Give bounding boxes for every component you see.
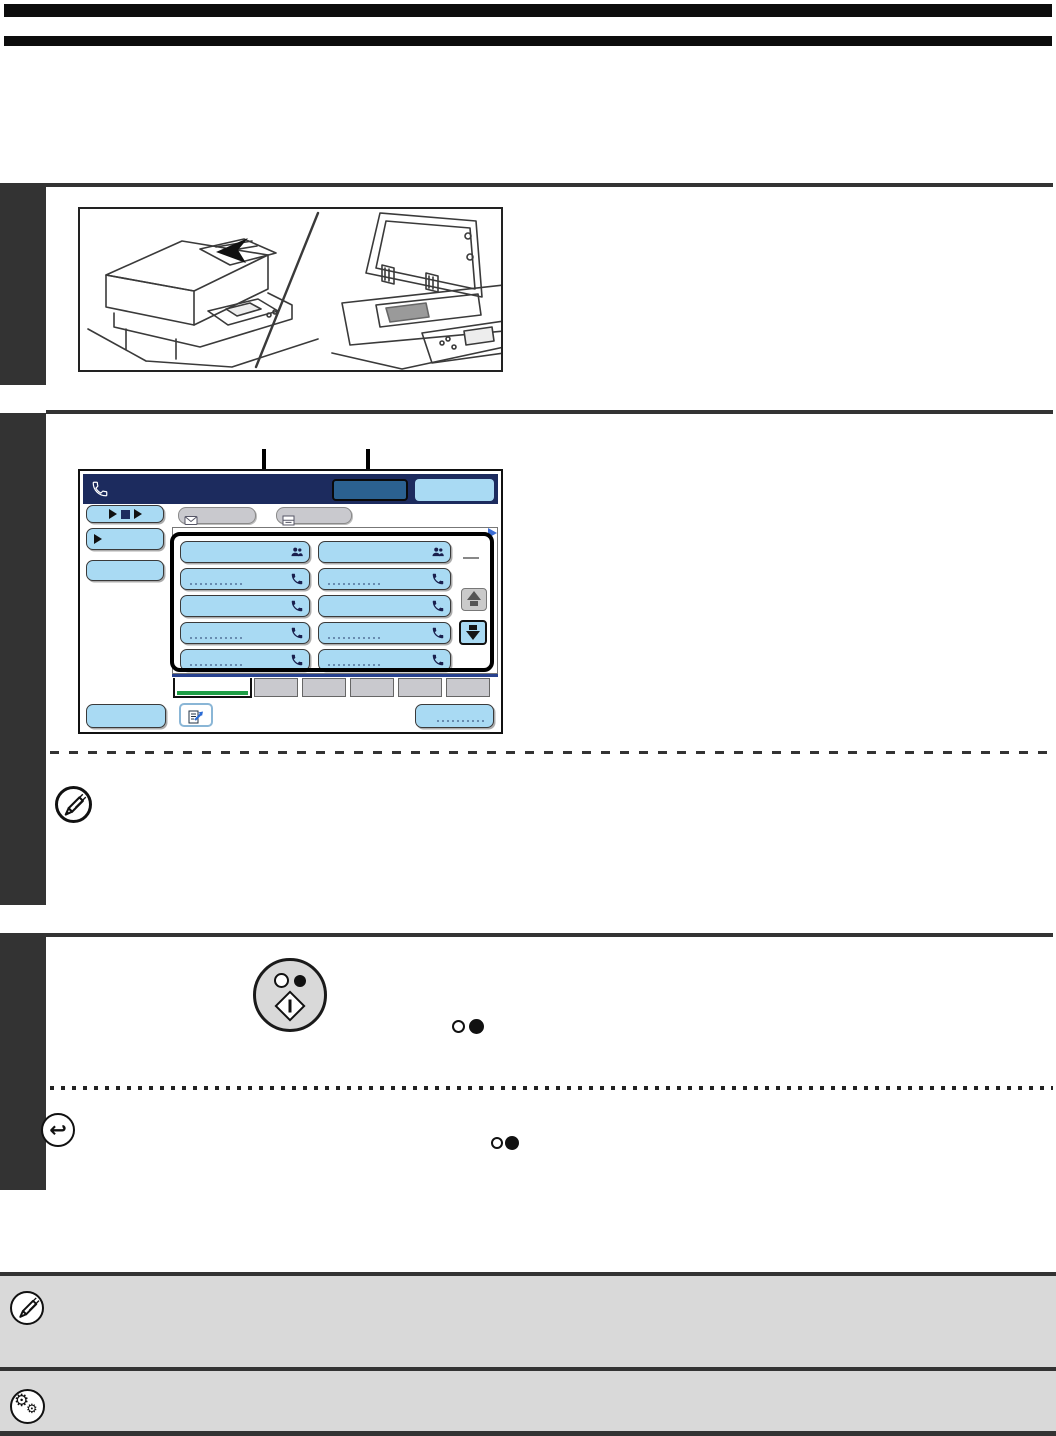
settings-gears-icon: ⚙ ⚙: [10, 1389, 45, 1424]
note-box-1: [0, 1276, 1056, 1367]
dashed-separator-1: [50, 751, 1053, 754]
inline-white-circle-2: [491, 1137, 503, 1149]
top-rule-thin: [4, 36, 1052, 46]
section-rule-2: [46, 410, 1053, 414]
index-tab-2[interactable]: [254, 678, 298, 697]
start-diamond-bar: [289, 1000, 292, 1013]
compose-forward-icon: [187, 708, 205, 725]
step-side-block-3: [0, 933, 46, 1190]
compose-forward-button[interactable]: [179, 703, 213, 727]
top-rule-thick: [4, 4, 1052, 17]
inline-white-circle-1: [452, 1020, 465, 1033]
start-key[interactable]: [253, 958, 327, 1032]
address-book-switch-button[interactable]: [415, 704, 494, 728]
index-tab-5[interactable]: [398, 678, 442, 697]
condition-settings-button[interactable]: [86, 704, 166, 728]
step-side-block-2: [0, 413, 46, 905]
start-key-mode-dots: [274, 973, 306, 988]
black-circle-icon: [294, 975, 306, 987]
page-bottom-border: [0, 1431, 1056, 1436]
inline-black-circle-2: [505, 1136, 519, 1150]
illegible-label: [437, 720, 485, 722]
fax-address-book-screen: [78, 469, 503, 734]
copier-illustration: [78, 207, 503, 372]
index-tab-4[interactable]: [350, 678, 394, 697]
copier-line-art: [80, 209, 501, 370]
index-tab-6[interactable]: [446, 678, 490, 697]
start-diamond-icon: [274, 990, 305, 1021]
note-box-2: ⚙ ⚙: [0, 1371, 1056, 1431]
step-side-block-1: [0, 183, 46, 385]
dotted-separator-2: [50, 1086, 1053, 1090]
inline-black-circle-1: [469, 1019, 484, 1034]
section-rule-1: [46, 183, 1053, 187]
note-pencil-icon: [10, 1291, 44, 1325]
index-tab-3[interactable]: [302, 678, 346, 697]
white-circle-icon: [274, 973, 289, 988]
gear-small-icon: ⚙: [26, 1402, 38, 1417]
index-tab-strip: [80, 471, 501, 732]
note-pencil-icon: [55, 786, 92, 823]
return-arrow-icon: ↩: [41, 1113, 75, 1147]
return-arrow-glyph: ↩: [49, 1120, 67, 1141]
section-rule-3: [46, 933, 1053, 937]
manual-page: ↩ ⚙ ⚙: [0, 0, 1056, 1436]
